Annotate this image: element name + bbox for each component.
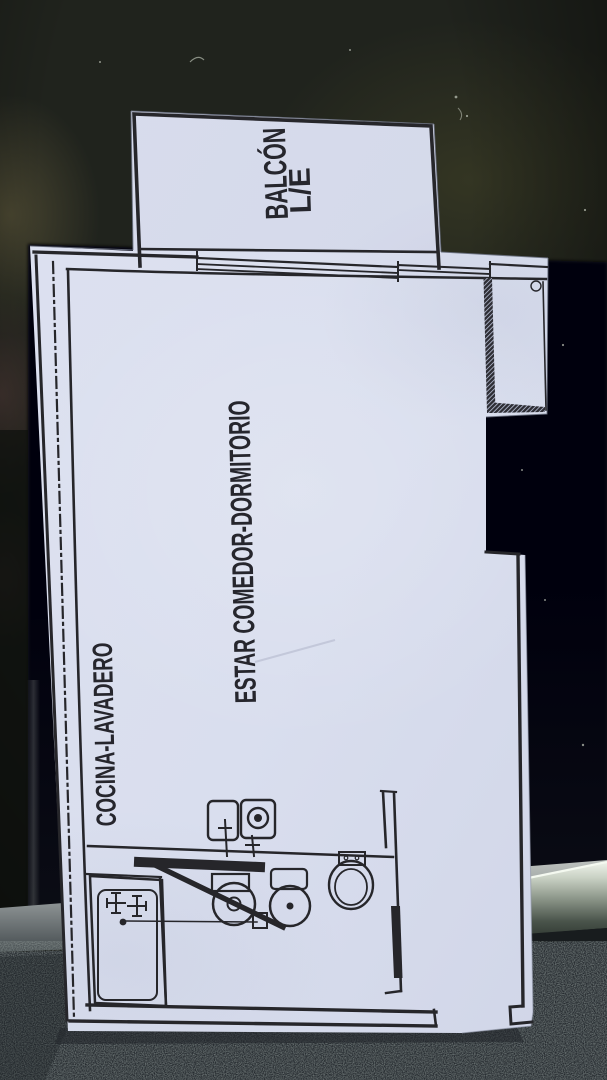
svg-text:L/E: L/E bbox=[283, 167, 318, 214]
svg-text:COCINA-LAVADERO: COCINA-LAVADERO bbox=[87, 642, 123, 826]
svg-text:ESTAR COMEDOR-DORMITORIO: ESTAR COMEDOR-DORMITORIO bbox=[223, 400, 263, 704]
